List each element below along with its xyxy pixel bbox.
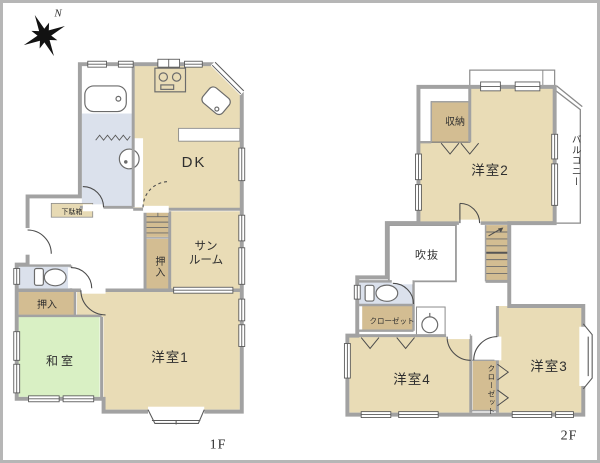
floor2-drawing — [344, 70, 592, 417]
closet-by-stairs-floor — [146, 239, 169, 289]
atrium-void-box — [389, 225, 456, 281]
closet-west-floor — [19, 291, 75, 315]
bathtub-icon — [85, 86, 126, 112]
room-western4-floor — [349, 336, 470, 413]
toilet-icon-2f — [365, 285, 398, 301]
closet-between-floor — [473, 360, 498, 410]
room-western3-floor — [497, 306, 583, 413]
floor1-drawing — [14, 59, 245, 424]
closet-hall-floor — [362, 306, 413, 331]
toilet-icon-1f — [34, 269, 66, 286]
room-sunroom-floor — [171, 211, 240, 289]
balcony-floor — [555, 90, 581, 223]
room-tatami-floor — [19, 317, 100, 397]
bay-window-1f — [148, 407, 204, 425]
compass-rose-icon — [14, 5, 74, 65]
storage-floor — [431, 102, 469, 142]
bay-window-2f — [579, 324, 592, 389]
floorplan-page: N DK サン ルーム 押入 押入 和室 洋室1 下駄箱 1F 収納 洋室2 バ… — [0, 0, 600, 463]
washbasin-icon — [119, 149, 139, 169]
floorplan-drawing — [3, 3, 597, 460]
dk-counter — [179, 128, 240, 141]
